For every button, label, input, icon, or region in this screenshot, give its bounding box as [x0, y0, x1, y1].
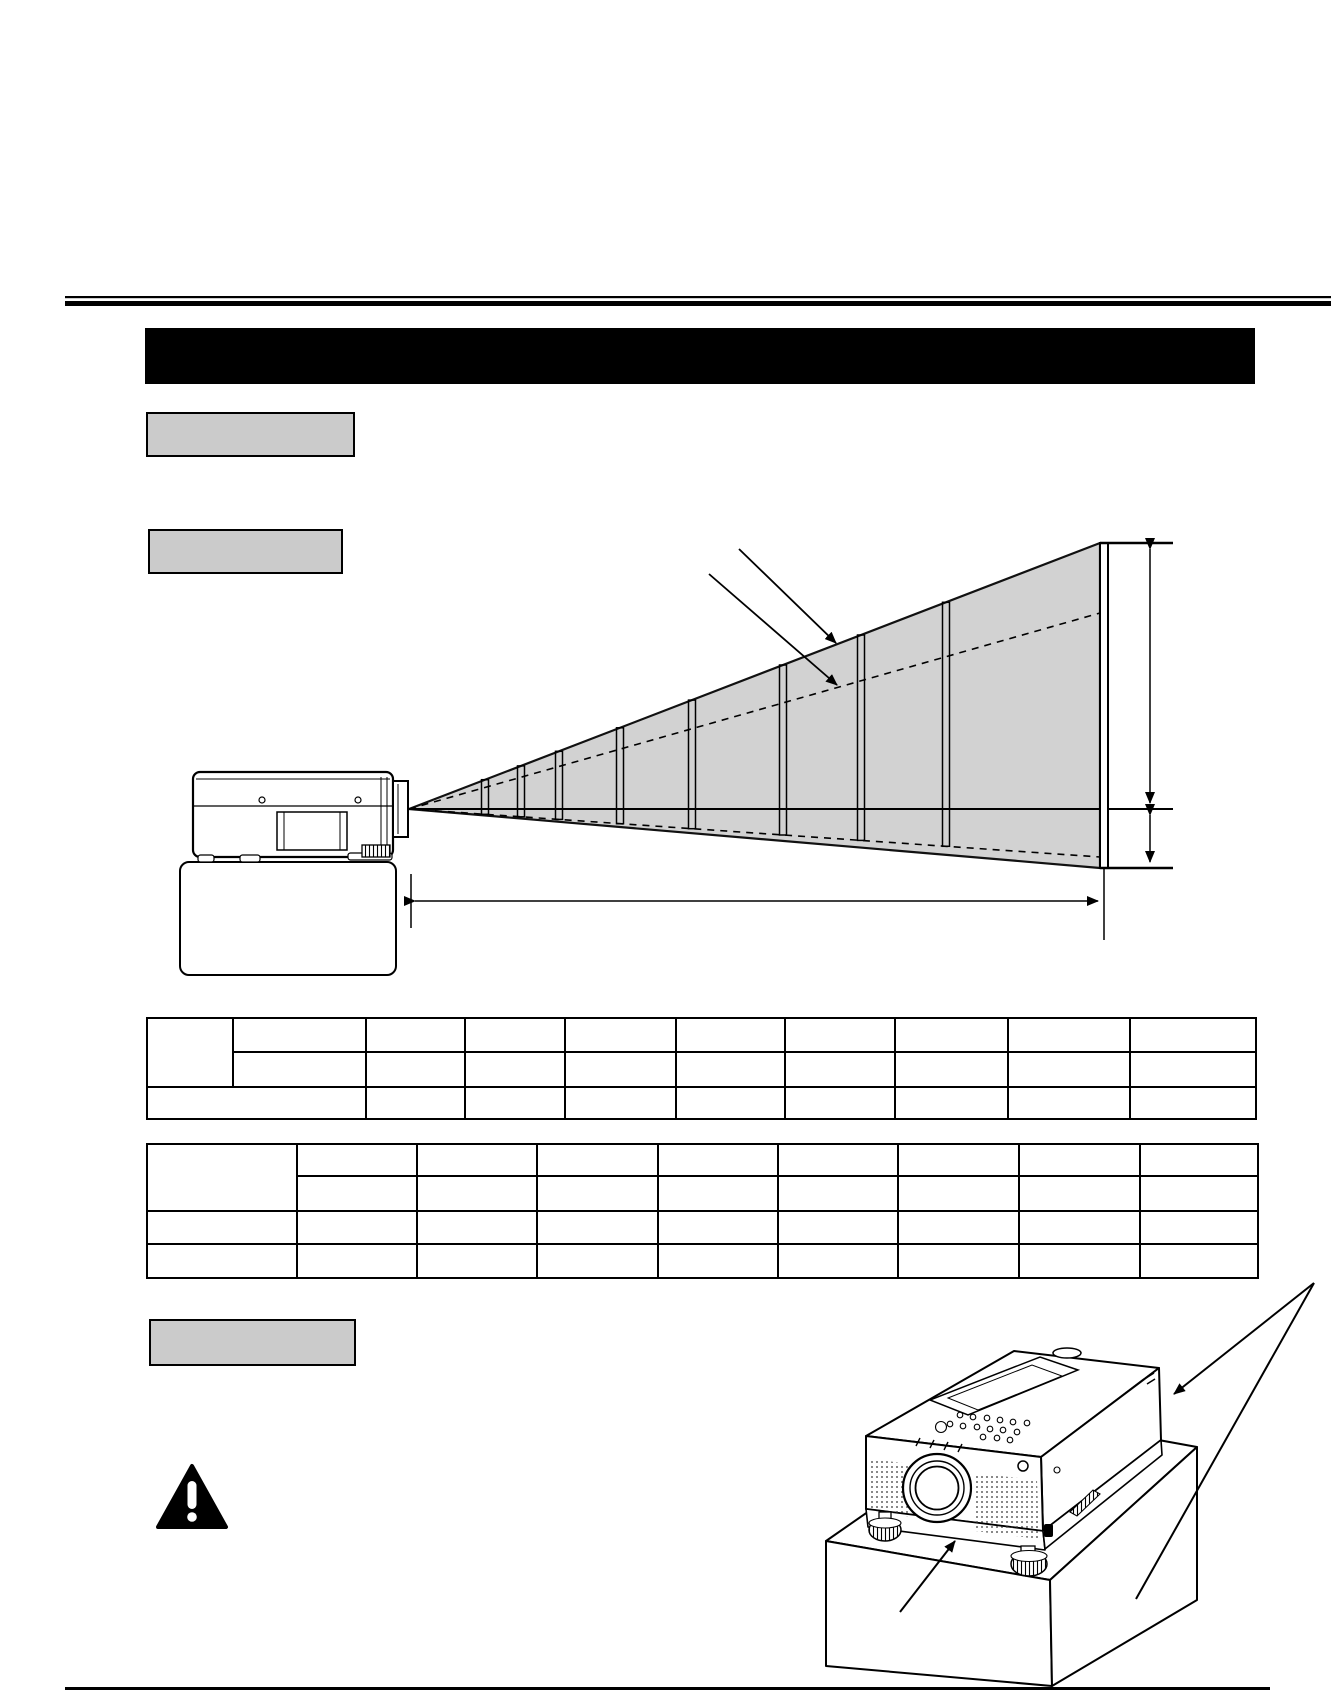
- table-cell: [785, 1087, 895, 1119]
- projector-3d-illustration: [826, 1283, 1314, 1686]
- table-cell: [297, 1176, 417, 1211]
- table-cell: [366, 1018, 465, 1052]
- table-cell: [676, 1018, 785, 1052]
- table-cell: [1130, 1018, 1256, 1052]
- rear-foot: [198, 855, 214, 862]
- rear-foot: [1044, 1524, 1053, 1537]
- projector-stand: [180, 862, 396, 975]
- table-cell: [233, 1018, 366, 1052]
- table-cell: [1140, 1144, 1258, 1176]
- table-cell: [898, 1176, 1019, 1211]
- side-view-projector: [193, 772, 408, 862]
- table-cell: [1008, 1018, 1130, 1052]
- adjustable-foot-knob: [362, 845, 390, 857]
- table-cell: [778, 1244, 898, 1278]
- speaker-grille: [973, 1473, 1039, 1539]
- table-cell: [366, 1087, 465, 1119]
- table-cell: [658, 1244, 778, 1278]
- table-cell: [658, 1211, 778, 1244]
- manual-page: [0, 0, 1331, 1706]
- table-cell: [147, 1244, 297, 1278]
- table-cell: [537, 1144, 658, 1176]
- projection-distance-diagram: [180, 543, 1173, 975]
- table-cell: [898, 1144, 1019, 1176]
- table-cell: [465, 1052, 565, 1087]
- table-cell: [898, 1211, 1019, 1244]
- table-cell: [895, 1052, 1008, 1087]
- table-cell: [778, 1211, 898, 1244]
- screen-size-vs-distance-table: [146, 1017, 1257, 1120]
- table-cell: [895, 1087, 1008, 1119]
- table-cell: [895, 1018, 1008, 1052]
- table-cell: [417, 1176, 537, 1211]
- table-cell: [297, 1211, 417, 1244]
- table-cell: [565, 1087, 676, 1119]
- table-cell: [233, 1052, 366, 1087]
- warning-triangle-icon: [158, 1466, 226, 1527]
- screen-pointer-arrow: [739, 549, 836, 643]
- table-cell: [565, 1052, 676, 1087]
- table-cell: [297, 1244, 417, 1278]
- bottom-rule: [65, 1687, 1270, 1690]
- carry-handle-notch: [1053, 1348, 1081, 1358]
- table-cell: [147, 1087, 366, 1119]
- table-cell: [366, 1052, 465, 1087]
- table-cell: [537, 1211, 658, 1244]
- projection-cone: [409, 543, 1173, 868]
- table-cell: [898, 1244, 1019, 1278]
- page-line-art: [0, 0, 1331, 1706]
- table-cell: [785, 1018, 895, 1052]
- table-cell: [147, 1018, 233, 1087]
- table-cell: [1008, 1052, 1130, 1087]
- table-cell: [658, 1144, 778, 1176]
- table-cell: [1019, 1244, 1140, 1278]
- table-cell: [147, 1144, 297, 1211]
- table-cell: [147, 1211, 297, 1244]
- table-cell: [1140, 1244, 1258, 1278]
- table-cell: [537, 1244, 658, 1278]
- table-cell: [1008, 1087, 1130, 1119]
- table-cell: [465, 1018, 565, 1052]
- table-cell: [565, 1018, 676, 1052]
- table-cell: [1140, 1176, 1258, 1211]
- table-cell: [1140, 1211, 1258, 1244]
- table-cell: [297, 1144, 417, 1176]
- table-cell: [778, 1176, 898, 1211]
- table-cell: [1019, 1144, 1140, 1176]
- table-cell: [465, 1087, 565, 1119]
- ir-sensor-icon: [1018, 1461, 1028, 1471]
- top-double-rule: [65, 296, 1331, 306]
- table-cell: [417, 1244, 537, 1278]
- lens-block: [393, 781, 408, 837]
- table-cell: [1130, 1052, 1256, 1087]
- lens-3d: [903, 1454, 971, 1522]
- side-handle: [277, 812, 347, 850]
- body-pointer-arrow: [1174, 1283, 1314, 1394]
- table-cell: [537, 1176, 658, 1211]
- screen: [1100, 543, 1108, 868]
- table-cell: [417, 1144, 537, 1176]
- table-cell: [1019, 1211, 1140, 1244]
- table-cell: [658, 1176, 778, 1211]
- table-cell: [1130, 1087, 1256, 1119]
- table-cell: [417, 1211, 537, 1244]
- distance-table: [146, 1143, 1259, 1279]
- rear-foot: [240, 855, 260, 862]
- table-cell: [676, 1052, 785, 1087]
- table-cell: [785, 1052, 895, 1087]
- table-cell: [1019, 1176, 1140, 1211]
- table-cell: [778, 1144, 898, 1176]
- table-cell: [676, 1087, 785, 1119]
